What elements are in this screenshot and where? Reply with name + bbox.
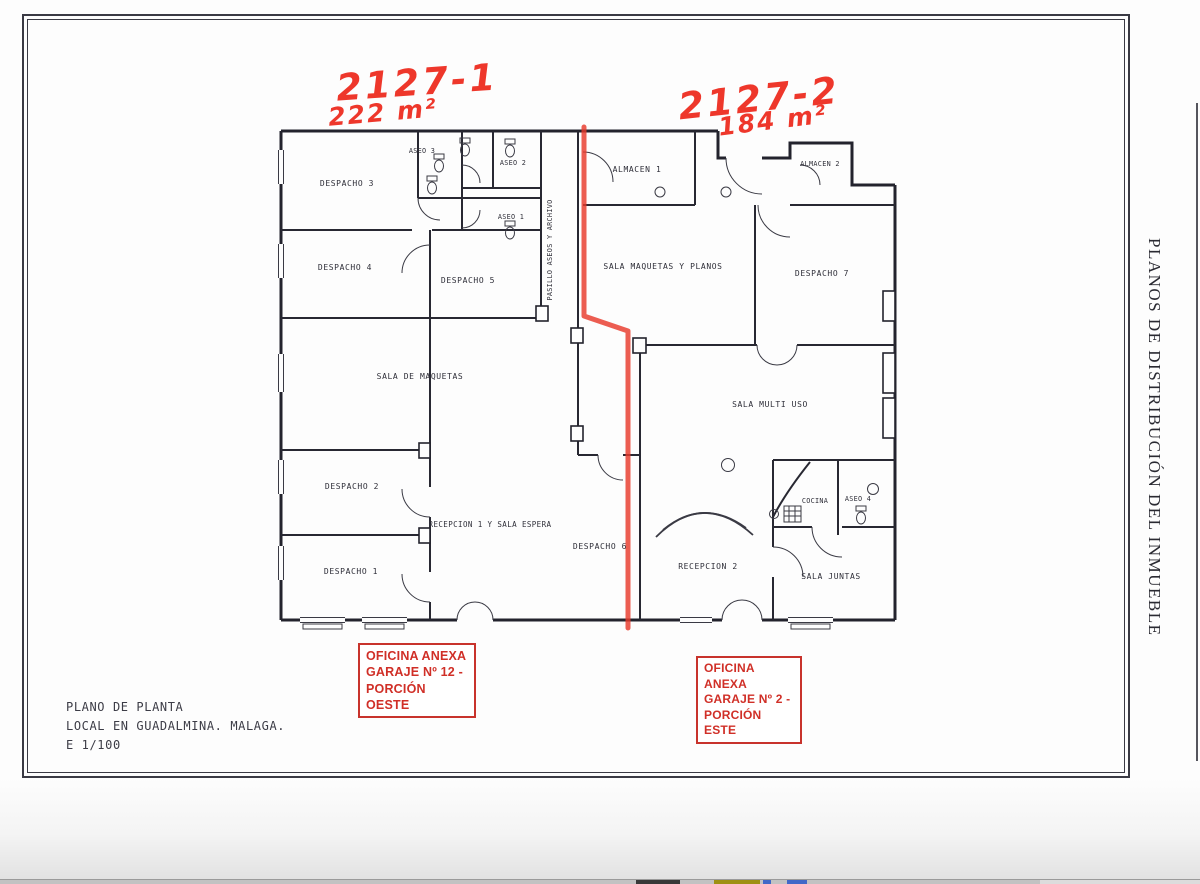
stamp-garaje-12-porcion-oeste: OFICINA ANEXA GARAJE Nº 12 - PORCIÓN OES… <box>358 643 476 718</box>
room-label-pasillo: PASILLO ASEOS Y ARCHIVO <box>546 199 554 300</box>
title-block: PLANO DE PLANTA LOCAL EN GUADALMINA. MAL… <box>66 698 285 756</box>
title-block-line-3: E 1/100 <box>66 736 285 755</box>
room-label-despacho-7: DESPACHO 7 <box>795 269 849 278</box>
room-label-despacho-4: DESPACHO 4 <box>318 263 372 272</box>
room-label-almacen-1: ALMACEN 1 <box>613 165 662 174</box>
room-label-despacho-3: DESPACHO 3 <box>320 179 374 188</box>
stamp-garaje-2-porcion-este: OFICINA ANEXA GARAJE Nº 2 - PORCIÓN ESTE <box>696 656 802 744</box>
stamp-line: OFICINA ANEXA <box>704 661 794 692</box>
room-label-aseo-4: ASEO 4 <box>845 495 871 503</box>
room-label-sala-juntas: SALA JUNTAS <box>801 572 861 581</box>
room-label-despacho-1: DESPACHO 1 <box>324 567 378 576</box>
toilet-icon <box>427 138 866 524</box>
title-block-line-1: PLANO DE PLANTA <box>66 698 285 717</box>
scanned-floor-plan-page: DESPACHO 3 DESPACHO 4 DESPACHO 5 ASEO 3 … <box>0 0 1200 884</box>
room-label-sala-maquetas-planos: SALA MAQUETAS Y PLANOS <box>603 262 722 271</box>
taskbar-sliver <box>0 879 1200 884</box>
room-label-aseo-2: ASEO 2 <box>500 159 526 167</box>
room-label-recepcion-1: RECEPCION 1 Y SALA ESPERA <box>429 520 552 529</box>
room-label-aseo-3: ASEO 3 <box>409 147 435 155</box>
taskbar-segment-light <box>1040 880 1200 884</box>
room-label-recepcion-2: RECEPCION 2 <box>678 562 738 571</box>
taskbar-segment-dark <box>636 880 680 884</box>
room-label-almacen-2: ALMACEN 2 <box>800 160 840 168</box>
room-label-aseo-1: ASEO 1 <box>498 213 524 221</box>
sink-icon <box>868 484 879 495</box>
side-caption-vertical: PLANOS DE DISTRIBUCIÓN DEL INMUEBLE <box>1144 238 1164 668</box>
stamp-line: GARAJE Nº 12 - <box>366 664 468 680</box>
red-division-line <box>584 127 628 628</box>
taskbar-segment-blue <box>763 880 771 884</box>
stamp-line: PORCIÓN OESTE <box>366 681 468 714</box>
room-label-despacho-2: DESPACHO 2 <box>325 482 379 491</box>
stamp-line: PORCIÓN ESTE <box>704 708 794 739</box>
room-label-cocina: COCINA <box>802 497 828 505</box>
right-margin-rule <box>1196 103 1198 761</box>
title-block-line-2: LOCAL EN GUADALMINA. MALAGA. <box>66 717 285 736</box>
room-label-sala-multiuso: SALA MULTI USO <box>732 400 808 409</box>
room-label-despacho-6: DESPACHO 6 <box>573 542 627 551</box>
room-label-sala-maquetas: SALA DE MAQUETAS <box>377 372 464 381</box>
stamp-line: OFICINA ANEXA <box>366 648 468 664</box>
taskbar-segment-olive <box>714 880 760 884</box>
stamp-line: GARAJE Nº 2 - <box>704 692 794 708</box>
room-label-despacho-5: DESPACHO 5 <box>441 276 495 285</box>
taskbar-segment-blue <box>787 880 807 884</box>
